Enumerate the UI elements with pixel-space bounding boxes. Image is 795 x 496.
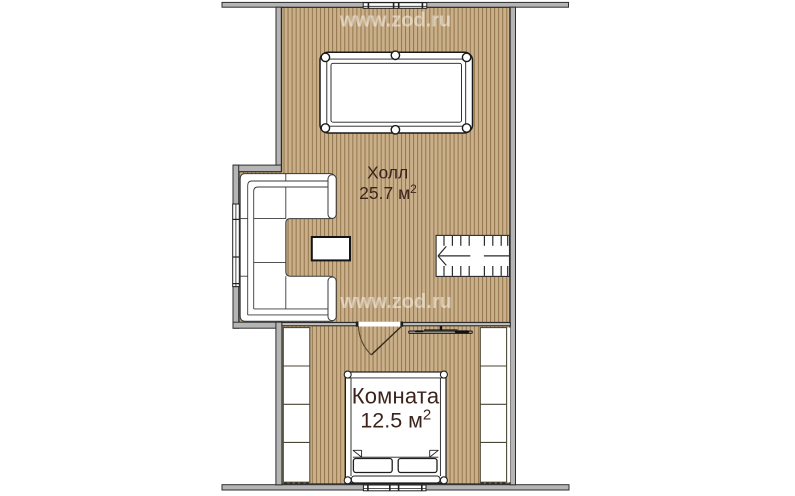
svg-text:www.zod.ru: www.zod.ru (339, 10, 451, 32)
svg-text:12.5 м2: 12.5 м2 (360, 407, 431, 433)
svg-text:www.zod.ru: www.zod.ru (339, 291, 451, 313)
svg-text:25.7 м2: 25.7 м2 (359, 182, 417, 203)
svg-text:Холл: Холл (367, 163, 408, 183)
svg-text:Комната: Комната (352, 384, 440, 409)
